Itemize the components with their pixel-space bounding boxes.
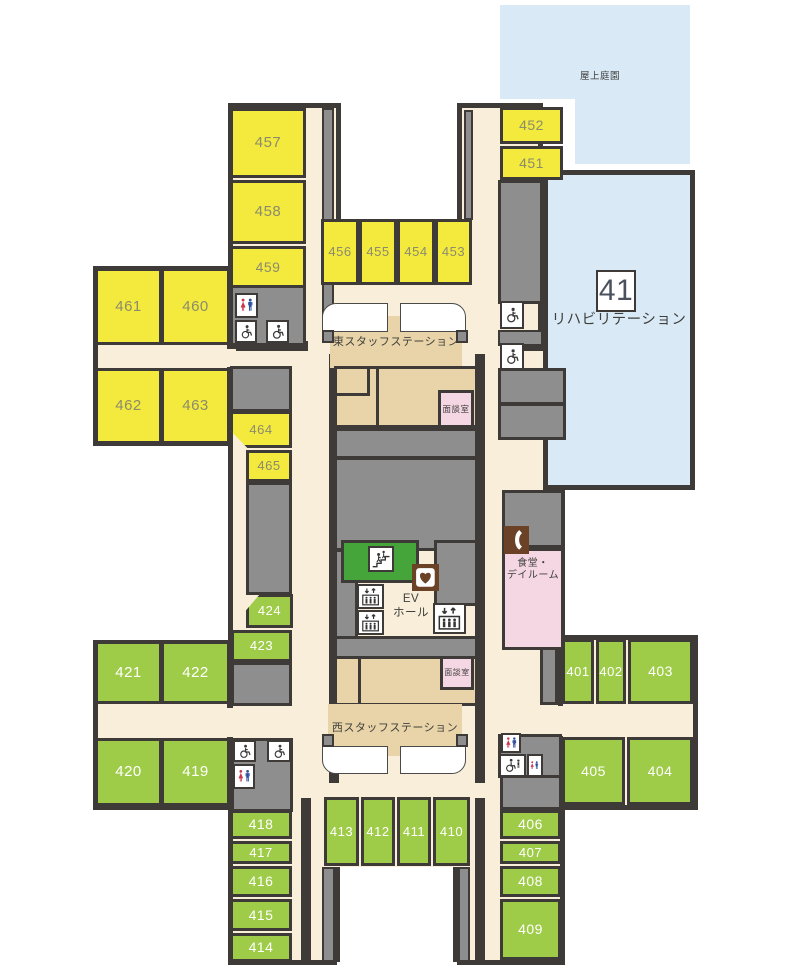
accessible-toilet-icon-glyph	[503, 346, 521, 367]
room-417-text: 417	[249, 845, 272, 861]
accessible-toilet-icon	[233, 740, 256, 762]
room-460: 460	[161, 268, 230, 345]
courtyard-south	[335, 867, 458, 962]
room-461-text: 461	[115, 298, 142, 316]
toilet-icon-east-small	[501, 733, 521, 753]
ev-hall-label: EV ホール	[383, 589, 439, 625]
room-462: 462	[95, 368, 162, 444]
stairs-icon	[368, 546, 394, 572]
room-452-text: 452	[519, 117, 544, 134]
toilet-icon-south-glyph	[236, 767, 253, 786]
meeting-room-south: 面談室	[440, 656, 474, 690]
room-409-text: 409	[518, 921, 543, 938]
corridor-opening-south	[293, 783, 504, 798]
room-455-text: 455	[366, 244, 389, 260]
corridor-opening-east	[552, 706, 566, 736]
room-453: 453	[435, 219, 472, 285]
meeting-room-north-text: 面談室	[442, 404, 469, 414]
corridor-opening-west-upper	[222, 349, 236, 367]
room-423-text: 423	[250, 638, 273, 654]
public-phone-icon	[504, 526, 529, 554]
room-406-text: 406	[518, 816, 543, 833]
room-404-text: 404	[648, 763, 673, 780]
gray-room-mid-3	[231, 662, 292, 706]
toilet-icon-east	[527, 754, 543, 777]
rooftop-garden-label-text: 屋上庭園	[580, 71, 620, 82]
room-453-text: 453	[442, 244, 465, 260]
east-staff-station-label: 東スタッフステーション	[330, 334, 462, 352]
floor-plan: 屋上庭園面談室面談室食堂・ デイルーム457458459456455454453…	[0, 0, 792, 971]
rooftop-garden-label: 屋上庭園	[560, 70, 640, 84]
room-410: 410	[433, 797, 470, 866]
room-408-text: 408	[518, 873, 543, 890]
west-staff-station-label-text: 西スタッフステーション	[332, 722, 458, 735]
room-409: 409	[500, 899, 561, 960]
room-413-text: 413	[330, 824, 353, 840]
accessible-toilet-icon	[267, 740, 291, 762]
wall-strip-south-right	[458, 867, 470, 962]
accessible-toilet-icon	[235, 320, 257, 343]
gray-room-rehab-sw-2	[498, 403, 566, 440]
dining-dayroom-label: 食堂・ デイルーム	[503, 554, 563, 586]
accessible-toilet-icon-glyph	[270, 743, 288, 760]
toilet-icon-east-glyph	[529, 757, 540, 774]
room-421: 421	[95, 641, 162, 704]
room-405-text: 405	[581, 763, 606, 780]
room-405: 405	[562, 737, 625, 805]
room-454-text: 454	[404, 244, 427, 260]
room-459-text: 459	[256, 259, 281, 276]
core-gray-block	[334, 457, 478, 551]
gray-room-mid-1	[230, 366, 292, 412]
room-463-text: 463	[182, 397, 209, 415]
room-415-text: 415	[249, 907, 274, 924]
room-417: 417	[230, 841, 292, 864]
accessible-toilet-icon	[500, 301, 524, 329]
room-414-text: 414	[249, 939, 274, 956]
room-408: 408	[500, 866, 561, 897]
room-452: 452	[500, 107, 563, 144]
room-420: 420	[95, 738, 162, 806]
room-401: 401	[562, 639, 594, 704]
room-465: 465	[246, 450, 292, 482]
room-462-text: 462	[115, 397, 142, 415]
elevator-icon	[357, 584, 384, 609]
room-416-text: 416	[249, 873, 274, 890]
room-412-text: 412	[366, 824, 389, 840]
room-406: 406	[500, 810, 561, 839]
accessible-toilet-icon-glyph	[269, 323, 286, 340]
room-459: 459	[230, 246, 306, 288]
rehab-number-text: 41	[599, 273, 633, 309]
room-403: 403	[628, 639, 693, 704]
room-411: 411	[397, 797, 431, 866]
elevator-icon-glyph	[360, 613, 381, 632]
rehabilitation-area	[543, 170, 695, 490]
room-418: 418	[230, 810, 292, 839]
room-458-text: 458	[255, 203, 282, 221]
aed-icon	[412, 564, 439, 591]
room-403-text: 403	[648, 663, 673, 680]
utility-block-east-upper	[498, 180, 543, 304]
rooftop-garden	[500, 5, 690, 99]
east-counter-right	[400, 303, 466, 332]
gray-room-mid-2	[246, 482, 292, 595]
east-counter-left	[322, 303, 388, 332]
tan-sub-room	[334, 366, 370, 396]
room-413: 413	[324, 797, 359, 866]
toilet-icon-east-small-glyph	[504, 736, 519, 751]
room-454: 454	[397, 219, 435, 285]
room-456: 456	[321, 219, 359, 285]
room-455: 455	[359, 219, 397, 285]
room-407-text: 407	[519, 845, 542, 861]
room-402-text: 402	[599, 664, 622, 680]
room-404: 404	[627, 737, 693, 805]
room-410-text: 410	[440, 824, 463, 840]
gray-block-south-right	[500, 774, 562, 810]
meeting-room-south-text: 面談室	[444, 668, 470, 678]
elevator-icon-glyph	[436, 606, 463, 631]
public-phone-icon-glyph	[505, 527, 528, 553]
toilet-icon-south	[233, 764, 255, 789]
accessible-toilet-icon-glyph	[503, 304, 521, 326]
room-451-text: 451	[519, 155, 544, 172]
room-420-text: 420	[115, 763, 142, 781]
courtyard-north	[336, 103, 462, 221]
room-418-text: 418	[249, 816, 274, 833]
room-461: 461	[95, 268, 162, 345]
room-457-text: 457	[255, 134, 282, 152]
room-458: 458	[230, 180, 306, 244]
meeting-room-north: 面談室	[438, 390, 474, 428]
room-451: 451	[500, 146, 563, 180]
corridor-opening-west-lower	[222, 708, 236, 737]
elevator-icon-glyph	[360, 587, 381, 606]
room-423: 423	[231, 630, 292, 662]
accessible-ostomate-toilet-icon-glyph	[502, 757, 523, 774]
accessible-toilet-icon-glyph	[236, 743, 253, 760]
room-456-text: 456	[328, 244, 351, 260]
room-460-text: 460	[182, 298, 209, 316]
room-463: 463	[161, 368, 230, 444]
elevator-icon	[357, 610, 384, 635]
rehab-number: 41	[596, 270, 636, 312]
room-421-text: 421	[115, 664, 142, 682]
tan-room-divider-1	[376, 366, 379, 428]
aed-icon-glyph	[413, 565, 438, 590]
ev-hall-label-text: EV ホール	[393, 593, 429, 621]
east-staff-station-label-text: 東スタッフステーション	[333, 336, 459, 349]
core-gray-block-right	[434, 540, 478, 606]
room-411-text: 411	[403, 824, 425, 840]
room-464-text: 464	[249, 422, 272, 438]
wall-strip-south-left	[322, 867, 335, 962]
dining-dayroom-label-text: 食堂・ デイルーム	[507, 558, 559, 582]
room-457: 457	[230, 108, 306, 178]
room-401-text: 401	[566, 664, 589, 680]
accessible-ostomate-toilet-icon	[499, 754, 526, 777]
accessible-toilet-icon	[266, 320, 289, 343]
toilet-icon-north	[235, 293, 258, 318]
accessible-toilet-icon-glyph	[238, 323, 255, 340]
room-412: 412	[361, 797, 395, 866]
room-424-text: 424	[258, 603, 281, 619]
west-staff-station-label: 西スタッフステーション	[328, 720, 462, 738]
toilet-icon-north-glyph	[238, 296, 255, 315]
west-counter-right	[400, 746, 466, 774]
rehabilitation-label: リハビリテーション	[543, 312, 695, 330]
tan-room-divider-2	[358, 656, 361, 706]
west-counter-left	[322, 746, 388, 774]
core-gray-band-1	[334, 428, 478, 459]
room-422-text: 422	[182, 664, 209, 682]
room-419: 419	[161, 738, 230, 806]
room-414: 414	[230, 933, 292, 962]
rooftop-garden-lower	[575, 98, 690, 164]
room-407: 407	[500, 841, 561, 864]
room-402: 402	[596, 639, 626, 704]
stairs-icon-glyph	[371, 549, 391, 569]
gray-room-rehab-sw-1	[498, 368, 566, 405]
room-416: 416	[230, 866, 292, 897]
room-465-text: 465	[257, 458, 280, 474]
room-422: 422	[161, 641, 230, 704]
room-415: 415	[230, 899, 292, 931]
wall-strip-north-right	[464, 110, 473, 220]
accessible-toilet-icon	[500, 343, 524, 370]
rehabilitation-label-text: リハビリテーション	[552, 312, 687, 329]
room-419-text: 419	[182, 763, 209, 781]
